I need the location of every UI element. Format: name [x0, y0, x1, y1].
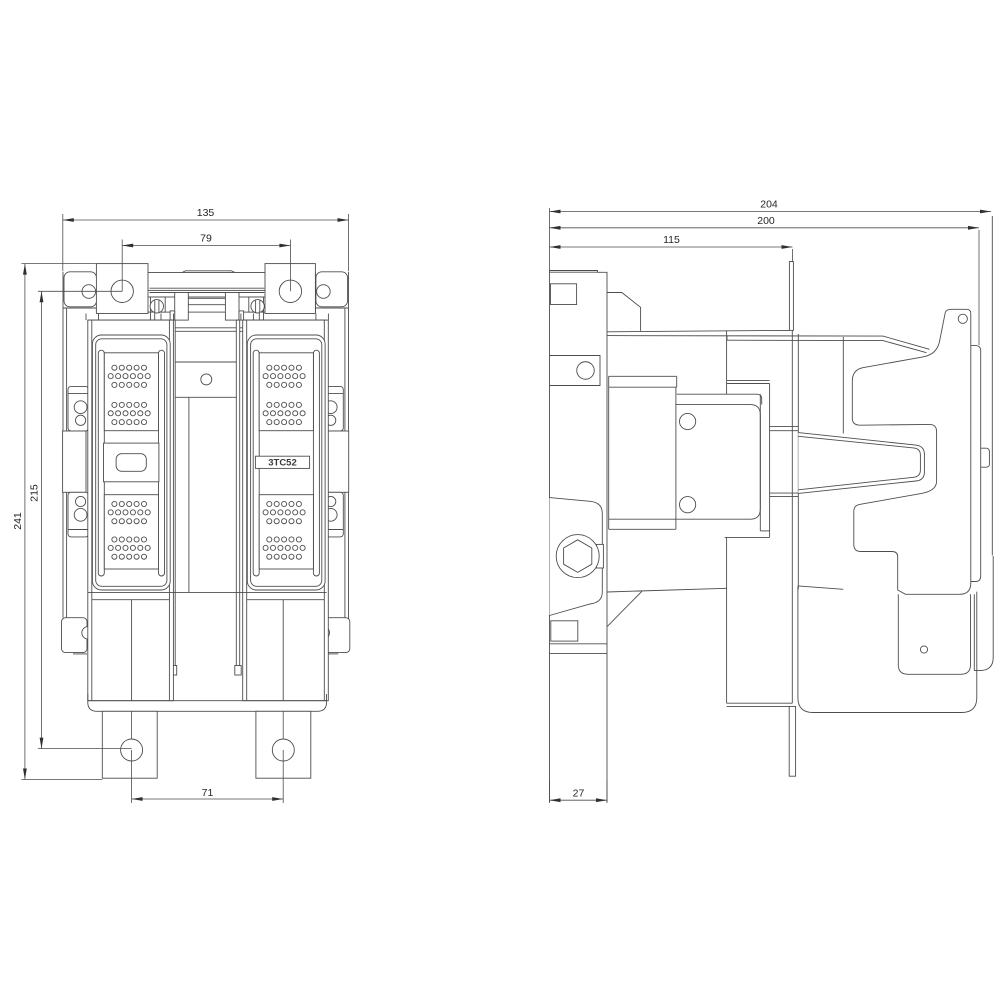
svg-text:204: 204	[760, 199, 778, 211]
svg-text:27: 27	[573, 787, 585, 799]
svg-text:241: 241	[12, 512, 24, 530]
svg-text:79: 79	[200, 233, 212, 245]
svg-text:200: 200	[757, 215, 775, 227]
svg-text:115: 115	[663, 234, 680, 246]
svg-text:71: 71	[202, 787, 214, 799]
svg-text:3TC52: 3TC52	[268, 457, 297, 468]
svg-text:215: 215	[29, 484, 41, 502]
svg-text:135: 135	[197, 207, 215, 219]
